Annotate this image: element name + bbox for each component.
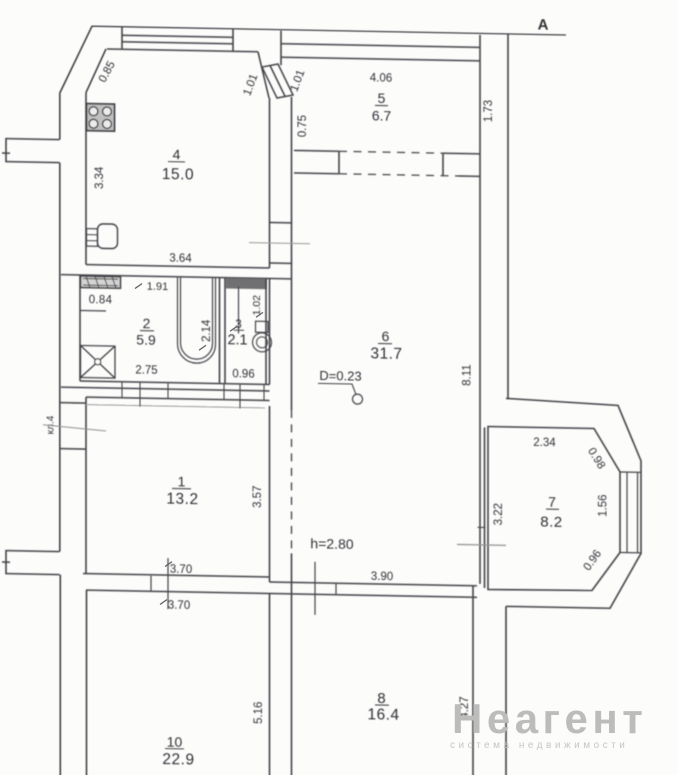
svg-text:0.98: 0.98 [585, 446, 607, 471]
svg-text:3.64: 3.64 [169, 253, 192, 265]
svg-text:1.91: 1.91 [147, 281, 168, 293]
svg-text:6: 6 [382, 328, 390, 344]
svg-text:15.0: 15.0 [162, 166, 194, 184]
svg-text:3.34: 3.34 [94, 166, 106, 189]
svg-text:6.7: 6.7 [372, 107, 392, 123]
svg-text:система недвижимости: система недвижимости [450, 740, 628, 751]
svg-text:1.02: 1.02 [251, 295, 263, 316]
svg-text:0.96: 0.96 [232, 368, 254, 380]
svg-text:1.56: 1.56 [598, 494, 610, 517]
svg-text:2.14: 2.14 [201, 319, 213, 342]
svg-text:22.9: 22.9 [162, 751, 194, 769]
svg-text:1.73: 1.73 [483, 100, 495, 123]
svg-text:5.16: 5.16 [253, 701, 265, 724]
svg-text:3.70: 3.70 [170, 564, 192, 576]
svg-text:8.2: 8.2 [540, 513, 562, 530]
svg-text:0.75: 0.75 [297, 115, 309, 138]
svg-text:1: 1 [178, 473, 186, 489]
svg-text:1.01: 1.01 [288, 68, 307, 93]
svg-text:D=0.23: D=0.23 [319, 368, 361, 384]
svg-text:13.2: 13.2 [166, 491, 198, 509]
svg-text:2.75: 2.75 [135, 365, 157, 377]
svg-text:4.06: 4.06 [370, 72, 392, 84]
svg-text:h=2.80: h=2.80 [310, 535, 353, 552]
svg-text:10: 10 [167, 734, 183, 750]
svg-text:4: 4 [173, 146, 181, 162]
svg-text:0.96: 0.96 [581, 548, 604, 573]
svg-text:2.1: 2.1 [227, 332, 247, 348]
svg-text:31.7: 31.7 [370, 345, 402, 363]
svg-text:1.01: 1.01 [241, 72, 260, 97]
svg-text:3.90: 3.90 [371, 571, 393, 583]
svg-text:2: 2 [143, 315, 151, 331]
svg-text:3.57: 3.57 [252, 485, 264, 508]
svg-text:3: 3 [235, 319, 241, 331]
svg-text:8.11: 8.11 [462, 364, 474, 386]
svg-text:Неагент: Неагент [452, 695, 647, 742]
svg-text:2.34: 2.34 [533, 437, 556, 449]
svg-text:16.4: 16.4 [367, 706, 399, 724]
svg-text:5.9: 5.9 [136, 332, 156, 348]
svg-text:3.22: 3.22 [493, 503, 505, 526]
svg-text:0.84: 0.84 [89, 294, 113, 306]
svg-text:7: 7 [548, 494, 556, 510]
svg-text:A: A [538, 16, 549, 33]
svg-text:3.70: 3.70 [168, 600, 190, 612]
svg-text:5: 5 [378, 90, 386, 106]
